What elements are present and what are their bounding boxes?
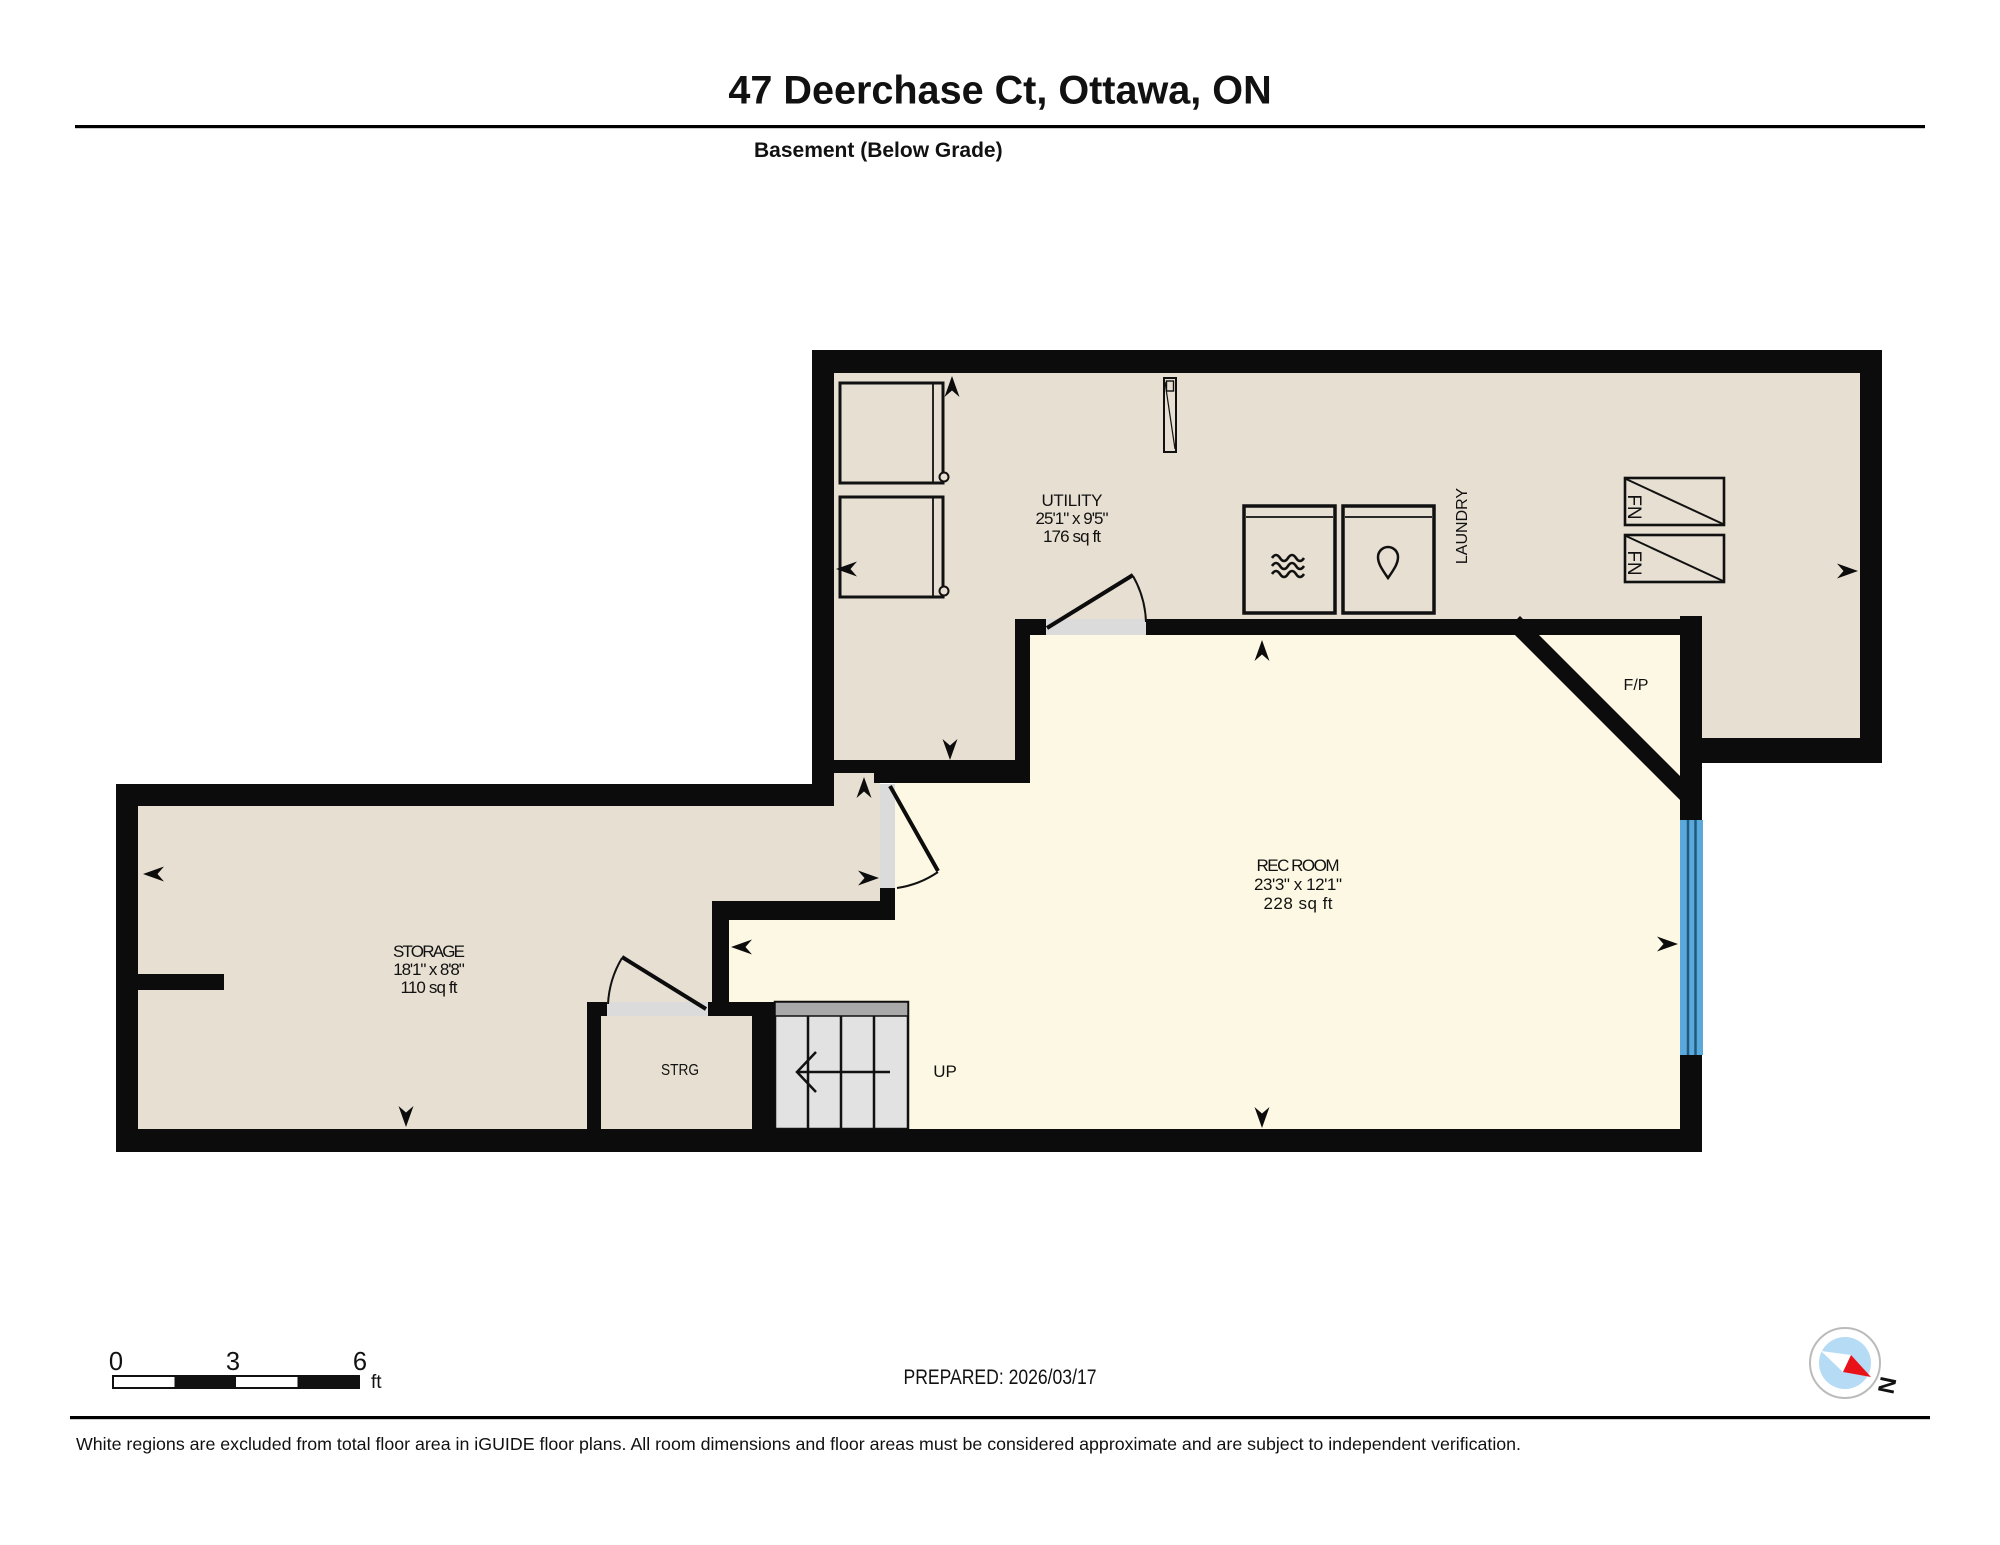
svg-text:176 sq ft: 176 sq ft — [1043, 527, 1101, 546]
svg-text:3: 3 — [226, 1348, 240, 1376]
svg-text:ft: ft — [371, 1372, 382, 1393]
svg-text:47 Deerchase Ct, Ottawa, ON: 47 Deerchase Ct, Ottawa, ON — [728, 69, 1271, 113]
svg-text:110 sq ft: 110 sq ft — [401, 978, 458, 997]
svg-text:6: 6 — [353, 1348, 367, 1376]
svg-text:UTILITY: UTILITY — [1042, 491, 1103, 510]
svg-text:FN: FN — [1623, 550, 1644, 575]
svg-text:FN: FN — [1623, 494, 1644, 519]
svg-text:228 sq ft: 228 sq ft — [1264, 894, 1333, 913]
svg-text:White regions are excluded fro: White regions are excluded from total fl… — [76, 1434, 1521, 1454]
svg-text:STRG: STRG — [661, 1062, 699, 1079]
svg-text:F/P: F/P — [1624, 677, 1649, 694]
svg-text:STORAGE: STORAGE — [393, 942, 465, 961]
svg-text:UP: UP — [933, 1062, 957, 1081]
svg-text:PREPARED: 2026/03/17: PREPARED: 2026/03/17 — [904, 1366, 1097, 1389]
svg-text:0: 0 — [109, 1348, 123, 1376]
svg-text:REC ROOM: REC ROOM — [1257, 856, 1340, 875]
svg-text:18'1" x 8'8": 18'1" x 8'8" — [393, 960, 465, 979]
svg-text:LAUNDRY: LAUNDRY — [1454, 488, 1471, 565]
svg-text:Basement (Below Grade): Basement (Below Grade) — [754, 139, 1003, 162]
svg-text:25'1" x 9'5": 25'1" x 9'5" — [1036, 509, 1109, 528]
svg-text:23'3" x 12'1": 23'3" x 12'1" — [1254, 875, 1342, 894]
